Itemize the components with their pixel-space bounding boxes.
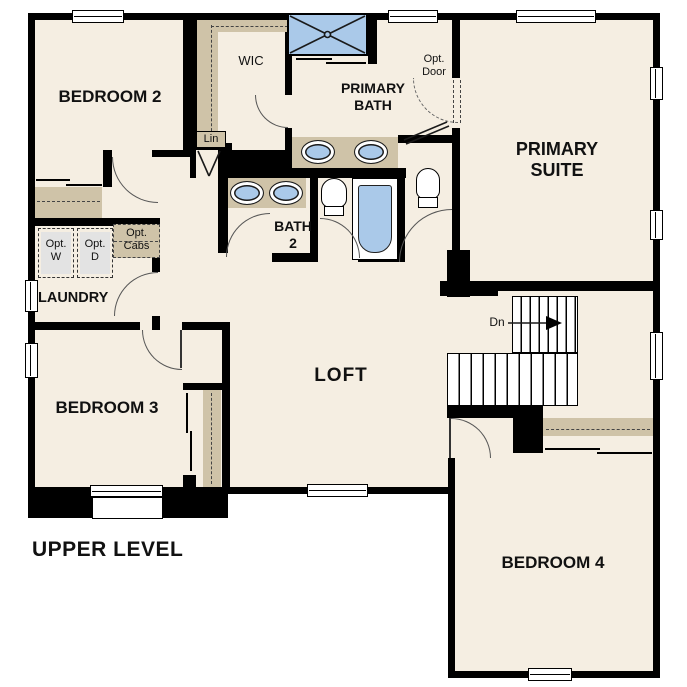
wall xyxy=(103,150,112,187)
shower-icon xyxy=(287,13,368,56)
stairs-dn-label: Dn xyxy=(484,315,510,329)
bay-window xyxy=(92,497,163,519)
opt-dryer-label: Opt. D xyxy=(77,238,113,264)
wic-shelf-dash xyxy=(211,26,288,27)
wall xyxy=(152,316,160,330)
primary-bath-label: PRIMARY BATH xyxy=(316,80,430,113)
opt-cabs-line1: Opt. xyxy=(113,227,160,240)
wall xyxy=(183,20,197,150)
opt-cabs-line2: Cabs xyxy=(113,240,160,253)
wall xyxy=(190,150,196,178)
window xyxy=(650,332,663,380)
bedroom4-closet-shelf xyxy=(543,418,653,436)
primary-bath-line2: BATH xyxy=(316,97,430,114)
window xyxy=(90,485,163,497)
bedroom2-closet-shelf xyxy=(35,187,102,218)
opt-door-line1: Opt. xyxy=(408,53,460,66)
bedroom2-label: BEDROOM 2 xyxy=(35,87,185,107)
shower-door xyxy=(296,58,332,60)
opt-door-label: Opt. Door xyxy=(408,53,460,79)
window xyxy=(388,10,438,23)
wall xyxy=(440,281,498,296)
wall xyxy=(448,458,455,678)
opt-washer-line2: W xyxy=(38,251,74,264)
opt-door-dash xyxy=(460,80,461,123)
bypass-door xyxy=(66,184,102,186)
loft-label: LOFT xyxy=(291,365,391,387)
bedroom4-label: BEDROOM 4 xyxy=(478,553,628,573)
opt-door-dash xyxy=(453,80,454,123)
window xyxy=(650,67,663,100)
wall xyxy=(28,13,35,494)
primary-suite-line1: PRIMARY xyxy=(487,139,627,160)
window xyxy=(528,668,572,681)
closet-shelf-dash xyxy=(546,429,650,430)
linen-label: Lin xyxy=(196,133,226,146)
sink-icon xyxy=(354,140,388,164)
primary-bath-line1: PRIMARY xyxy=(316,80,430,97)
wall xyxy=(285,128,292,150)
wic-label: WIC xyxy=(218,53,284,68)
opt-cabinets-label: Opt. Cabs xyxy=(113,227,160,253)
closet-shelf-dash xyxy=(37,201,100,202)
window xyxy=(650,210,663,240)
window xyxy=(25,343,38,378)
window xyxy=(516,10,596,23)
bypass-door xyxy=(597,452,652,454)
bath2-line1: BATH xyxy=(263,218,323,235)
wall xyxy=(218,178,228,253)
wall xyxy=(452,128,460,250)
wall xyxy=(272,253,318,262)
bath2-line2: 2 xyxy=(263,235,323,252)
floor-plan: BEDROOM 2 WIC PRIMARY BATH Opt. Door PRI… xyxy=(0,0,687,687)
shower-door xyxy=(326,62,366,64)
opt-dryer-line2: D xyxy=(77,251,113,264)
sink-icon xyxy=(269,181,303,205)
sink-icon xyxy=(301,140,335,164)
wall xyxy=(222,330,230,494)
toilet-tank xyxy=(418,197,438,208)
toilet-icon xyxy=(321,178,347,208)
bath2-label: BATH 2 xyxy=(263,218,323,251)
closet-shelf-dash xyxy=(211,393,212,484)
bypass-door xyxy=(190,431,192,471)
bedroom3-closet-shelf xyxy=(203,390,221,487)
wall xyxy=(182,322,230,330)
opt-washer-label: Opt. W xyxy=(38,238,74,264)
opt-washer-line1: Opt. xyxy=(38,238,74,251)
door-leaf xyxy=(180,330,182,368)
laundry-label: LAUNDRY xyxy=(36,290,136,307)
wall xyxy=(513,406,543,453)
stairs-lower-run xyxy=(447,353,578,406)
wic-shelf xyxy=(197,20,218,143)
bypass-door xyxy=(186,393,188,433)
bypass-door xyxy=(36,179,70,181)
sink-icon xyxy=(230,181,264,205)
bypass-door xyxy=(545,448,600,450)
toilet-icon xyxy=(416,168,440,199)
bathtub-icon xyxy=(358,185,392,253)
wall xyxy=(183,383,230,390)
opt-dryer-line1: Opt. xyxy=(77,238,113,251)
window xyxy=(72,10,124,23)
stairs-upper-run xyxy=(512,296,578,353)
wall xyxy=(398,135,452,143)
primary-suite-label: PRIMARY SUITE xyxy=(487,139,627,181)
door-leaf xyxy=(449,418,451,458)
wall xyxy=(368,13,377,64)
wall xyxy=(292,168,406,178)
toilet-tank xyxy=(324,206,344,216)
primary-suite-line2: SUITE xyxy=(487,160,627,181)
opt-door-line2: Door xyxy=(408,66,460,79)
plan-title: UPPER LEVEL xyxy=(32,538,252,563)
wall xyxy=(28,322,140,330)
wall xyxy=(183,475,196,487)
wic-shelf-dash xyxy=(211,25,212,141)
bedroom3-label: BEDROOM 3 xyxy=(32,398,182,418)
window xyxy=(307,484,368,497)
